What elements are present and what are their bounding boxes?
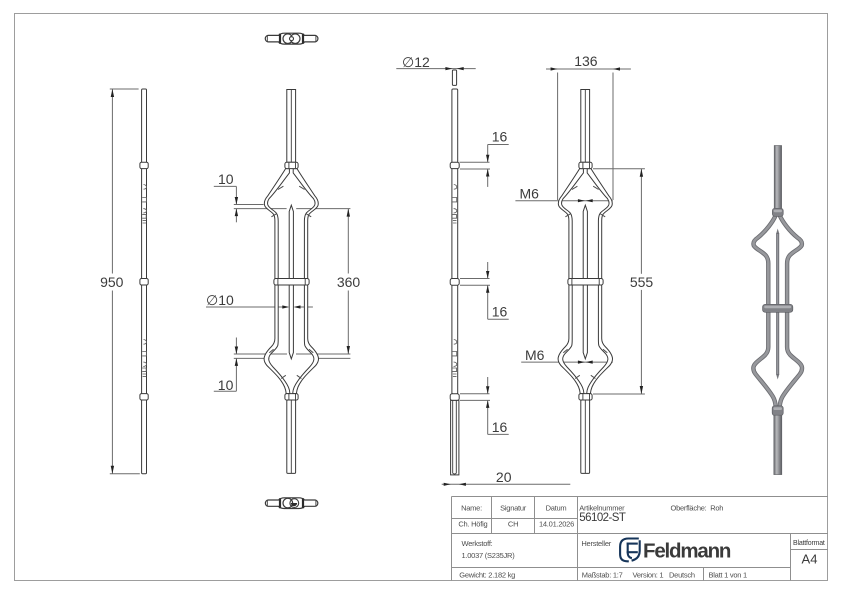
svg-text:360: 360 [337,274,361,290]
svg-text:Ch. Höfig: Ch. Höfig [458,520,487,529]
svg-text:CH: CH [508,520,518,529]
svg-text:Signatur: Signatur [500,504,527,513]
svg-text:56102-ST: 56102-ST [579,512,626,524]
svg-text:555: 555 [630,274,654,290]
svg-text:Feldmann: Feldmann [643,539,731,562]
svg-text:Maßstab: 1:7: Maßstab: 1:7 [582,571,623,580]
svg-text:∅12: ∅12 [402,54,430,70]
svg-text:16: 16 [492,128,508,144]
svg-text:Datum: Datum [546,504,567,513]
svg-text:Blattformat: Blattformat [793,540,825,547]
svg-text:Name:: Name: [461,504,482,513]
svg-text:M6: M6 [520,186,540,202]
svg-text:Werkstoff:: Werkstoff: [462,539,493,548]
svg-text:16: 16 [492,419,508,435]
svg-text:Oberfläche: Roh: Oberfläche: Roh [671,504,724,513]
svg-text:∅10: ∅10 [206,292,234,308]
svg-text:Gewicht: 2.182 kg: Gewicht: 2.182 kg [459,571,515,580]
svg-text:20: 20 [496,469,512,485]
svg-text:Hersteller: Hersteller [581,539,611,548]
svg-text:16: 16 [492,304,508,320]
svg-text:1.0037 (S235JR): 1.0037 (S235JR) [462,551,516,560]
svg-text:14.01.2026: 14.01.2026 [539,520,574,529]
svg-text:Deutsch: Deutsch [669,571,695,580]
svg-text:950: 950 [100,274,124,290]
svg-text:Blatt 1 von 1: Blatt 1 von 1 [709,571,748,580]
svg-text:Version: 1: Version: 1 [633,571,664,580]
svg-text:136: 136 [574,53,598,69]
svg-text:10: 10 [218,171,234,187]
svg-text:M6: M6 [525,347,545,363]
svg-text:A4: A4 [802,552,818,567]
svg-text:10: 10 [218,377,234,393]
